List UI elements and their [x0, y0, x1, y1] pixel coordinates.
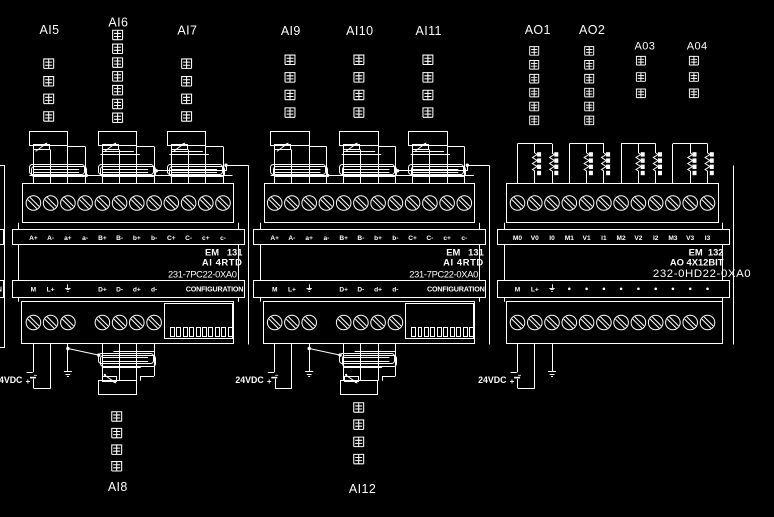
svg-text:c+: c+: [443, 235, 451, 242]
svg-text:c-: c-: [220, 235, 226, 242]
svg-text:231-7PC22-0XA0: 231-7PC22-0XA0: [168, 270, 237, 280]
svg-text:AI5: AI5: [40, 23, 60, 37]
svg-text:I2: I2: [653, 235, 659, 242]
svg-text:AI11: AI11: [416, 24, 442, 38]
svg-text:A-: A-: [288, 235, 295, 242]
svg-text:L+: L+: [288, 287, 296, 294]
svg-text:M0: M0: [513, 235, 522, 242]
svg-text:a-: a-: [323, 235, 329, 242]
svg-text:CONFIGURATION: CONFIGURATION: [427, 285, 485, 294]
svg-text:L+: L+: [531, 287, 539, 294]
svg-text:A+: A+: [29, 235, 38, 242]
svg-text:AO2: AO2: [579, 23, 605, 37]
svg-text:B-: B-: [357, 235, 364, 242]
svg-text:AI10: AI10: [346, 24, 373, 38]
svg-text:c+: c+: [202, 235, 210, 242]
svg-text:AO 4X12BIT: AO 4X12BIT: [670, 257, 724, 268]
svg-text:24VDC: 24VDC: [235, 375, 264, 385]
svg-text:I0: I0: [549, 235, 555, 242]
svg-text:A04: A04: [687, 41, 708, 53]
svg-text:C-: C-: [185, 235, 192, 242]
svg-text:I1: I1: [601, 235, 607, 242]
svg-text:N: N: [0, 285, 2, 294]
svg-text:C-: C-: [426, 235, 433, 242]
svg-text:b+: b+: [374, 235, 382, 242]
svg-text:M1: M1: [565, 235, 574, 242]
svg-text:24VDC: 24VDC: [0, 375, 23, 385]
svg-text:M2: M2: [617, 235, 626, 242]
svg-text:b-: b-: [392, 235, 398, 242]
svg-text:CONFIGURATION: CONFIGURATION: [186, 285, 244, 294]
svg-text:24VDC: 24VDC: [478, 375, 507, 385]
svg-text:V2: V2: [634, 235, 642, 242]
svg-text:B+: B+: [98, 235, 107, 242]
svg-text:D-: D-: [357, 287, 364, 294]
svg-text:L+: L+: [47, 287, 55, 294]
svg-text:M: M: [31, 287, 37, 294]
svg-text:D-: D-: [116, 287, 123, 294]
svg-text:M3: M3: [668, 235, 677, 242]
svg-text:AI12: AI12: [349, 482, 376, 496]
svg-text:a+: a+: [305, 235, 313, 242]
svg-text:d+: d+: [374, 287, 382, 294]
svg-text:V0: V0: [531, 235, 539, 242]
svg-text:AI 4RTD: AI 4RTD: [202, 257, 243, 268]
svg-text:B+: B+: [339, 235, 348, 242]
svg-text:d-: d-: [392, 287, 398, 294]
svg-text:d-: d-: [151, 287, 157, 294]
svg-text:V3: V3: [686, 235, 694, 242]
svg-text:a-: a-: [82, 235, 88, 242]
svg-text:232-0HD22-0XA0: 232-0HD22-0XA0: [653, 268, 751, 280]
svg-text:C+: C+: [408, 235, 417, 242]
svg-text:AI6: AI6: [108, 16, 128, 30]
svg-text:V1: V1: [583, 235, 591, 242]
svg-text:a+: a+: [64, 235, 72, 242]
svg-text:C+: C+: [167, 235, 176, 242]
svg-text:231-7PC22-0XA0: 231-7PC22-0XA0: [409, 270, 478, 280]
svg-text:b+: b+: [133, 235, 141, 242]
svg-text:AI9: AI9: [281, 24, 301, 38]
svg-text:AI8: AI8: [108, 480, 128, 494]
svg-text:D+: D+: [339, 287, 348, 294]
svg-text:AI7: AI7: [177, 24, 197, 38]
svg-text:I3: I3: [705, 235, 711, 242]
svg-text:b-: b-: [151, 235, 157, 242]
svg-text:A03: A03: [635, 41, 656, 53]
svg-text:A+: A+: [270, 235, 279, 242]
svg-text:c-: c-: [461, 235, 467, 242]
svg-text:M: M: [515, 287, 521, 294]
svg-text:AO1: AO1: [525, 23, 551, 37]
svg-text:A-: A-: [47, 235, 54, 242]
svg-text:d+: d+: [133, 287, 141, 294]
svg-text:M: M: [272, 287, 278, 294]
svg-text:D+: D+: [98, 287, 107, 294]
svg-text:AI 4RTD: AI 4RTD: [443, 257, 484, 268]
svg-text:B-: B-: [116, 235, 123, 242]
